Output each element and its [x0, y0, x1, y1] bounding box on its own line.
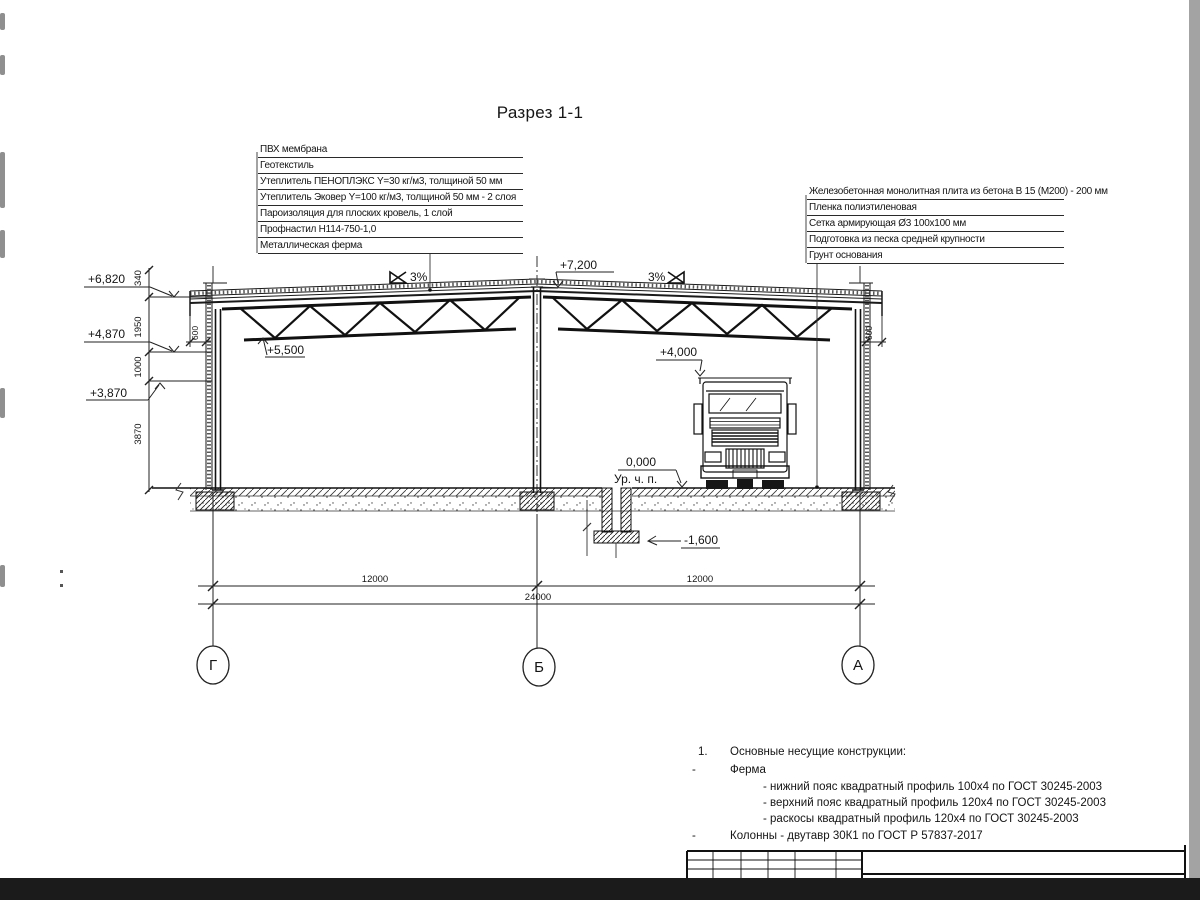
dim-3870: 3870 — [133, 423, 144, 444]
section-drawing: 340 1950 1000 3870 600 600 12000 12000 2… — [0, 0, 1200, 900]
elevation-6820: +6,820 — [88, 272, 125, 286]
axis-letter-g: Г — [209, 657, 217, 674]
edge-artifact — [0, 230, 5, 258]
floor-callout-row: Сетка армирующая Ø3 100х100 мм — [807, 216, 1064, 232]
viewer-right-margin — [1189, 0, 1200, 878]
column-left — [212, 309, 224, 490]
slope-right-label: 3% — [648, 270, 665, 284]
drawing-sheet: 340 1950 1000 3870 600 600 12000 12000 2… — [0, 0, 1200, 900]
drawing-title: Разрез 1-1 — [460, 103, 620, 123]
dim-span-right: 12000 — [687, 574, 713, 585]
viewer-bottom-bar — [0, 878, 1200, 900]
floor-callout-row: Пленка полиэтиленовая — [807, 200, 1064, 216]
stray-mark — [60, 584, 63, 587]
edge-artifact — [0, 565, 5, 587]
note-truss-label: Ферма — [730, 764, 766, 776]
note-number: 1. — [698, 746, 708, 758]
roof-callout-row: Утеплитель ПЕНОПЛЭКС Y=30 кг/м3, толщино… — [258, 174, 523, 190]
edge-artifact — [0, 388, 5, 418]
dim-600-right: 600 — [864, 326, 874, 340]
elevation-4000: +4,000 — [660, 345, 697, 359]
roof-callout-row: Утеплитель Эковер Y=100 кг/м3, толщиной … — [258, 190, 523, 206]
stray-mark — [60, 570, 63, 573]
steel-truss-right — [543, 297, 852, 340]
floor-callout-row: Подготовка из песка средней крупности — [807, 232, 1064, 248]
roof-callout-row: Геотекстиль — [258, 158, 523, 174]
steel-truss-left — [222, 297, 531, 340]
elevation-4870: +4,870 — [88, 327, 125, 341]
slope-left-label: 3% — [410, 270, 427, 284]
roof-callout-row: Металлическая ферма — [258, 238, 523, 254]
dim-span-left: 12000 — [362, 574, 388, 585]
roof-callout-row: Пароизоляция для плоских кровель, 1 слой — [258, 206, 523, 222]
floor-level-label: Ур. ч. п. — [614, 472, 657, 486]
dim-1950: 1950 — [133, 316, 144, 337]
roof-callout-row: ПВХ мембрана — [258, 142, 523, 158]
note-columns-item: Колонны - двутавр 30К1 по ГОСТ Р 57837-2… — [730, 830, 983, 842]
floor-callout-row: Железобетонная монолитная плита из бетон… — [807, 184, 1064, 200]
dim-340: 340 — [133, 270, 144, 286]
bottom-dims — [197, 493, 875, 686]
axis-letter-b: Б — [534, 659, 544, 676]
dim-1000: 1000 — [133, 356, 144, 377]
vertical-dim-chain — [145, 266, 153, 494]
axis-letter-a: А — [853, 657, 863, 674]
note-truss-item: - верхний пояс квадратный профиль 120х4 … — [763, 797, 1106, 809]
note-truss-item: - нижний пояс квадратный профиль 100х4 п… — [763, 781, 1102, 793]
elevation-0000: 0,000 — [626, 455, 656, 469]
floor-callout-row: Грунт основания — [807, 248, 1064, 264]
roof-deck — [190, 279, 882, 316]
note-dash: - — [692, 830, 696, 842]
elevation-minus-1600: -1,600 — [684, 533, 718, 547]
edge-artifact — [0, 13, 5, 30]
elevation-3870: +3,870 — [90, 386, 127, 400]
elevation-7200: +7,200 — [560, 258, 597, 272]
title-block — [687, 845, 1197, 878]
dim-total: 24000 — [525, 592, 551, 603]
roof-callout-row: Профнастил Н114-750-1,0 — [258, 222, 523, 238]
dim-600-left: 600 — [190, 326, 200, 340]
column-center — [531, 256, 543, 512]
note-dash: - — [692, 764, 696, 776]
note-truss-item: - раскосы квадратный профиль 120х4 по ГО… — [763, 813, 1079, 825]
elevation-5500: +5,500 — [267, 343, 304, 357]
column-right — [852, 309, 864, 490]
truck — [694, 378, 796, 489]
edge-artifact — [0, 55, 5, 75]
note-heading: Основные несущие конструкции: — [730, 746, 906, 758]
edge-artifact — [0, 152, 5, 208]
